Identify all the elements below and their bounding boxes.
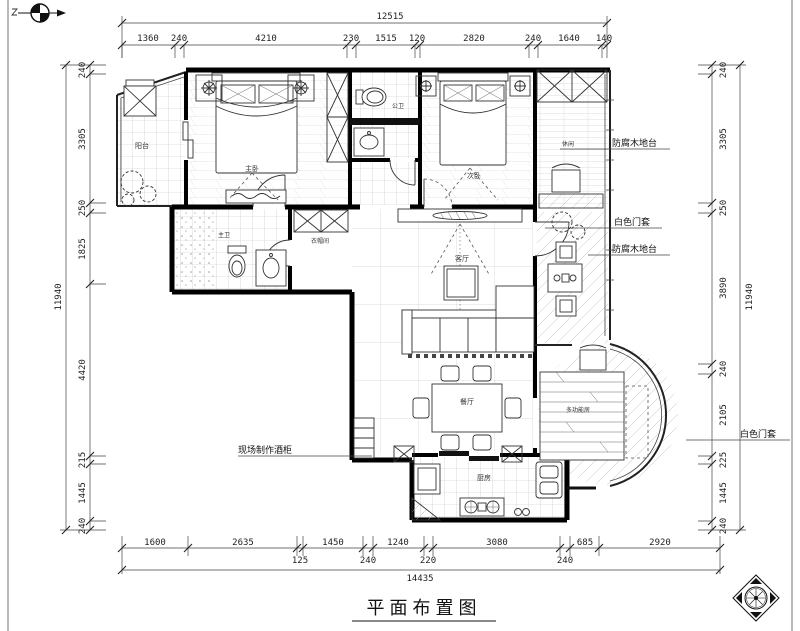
dimension-chain-left: 11940 240 3305 250 1825 4420 215 1445 24… [54,61,106,534]
annotation-deck-mid: 防腐木地台 [612,243,657,255]
dim: 1515 [375,34,397,44]
dim: 2820 [463,34,485,44]
annotation-wine-cabinet: 现场制作酒柜 [238,444,292,456]
drawing-title-block: 平面布置图 [352,598,496,621]
dim: 2635 [232,538,254,548]
dimension-chain-top: 12515 1360 240 4210 230 1515 120 2820 24… [118,12,612,58]
north-compass-icon [12,4,66,22]
dim: 2105 [719,404,729,426]
dim: 240 [360,556,376,566]
dim: 240 [525,34,541,44]
dim: 685 [577,538,593,548]
dim: 225 [719,452,729,468]
drawing-title: 平面布置图 [367,598,482,618]
dimension-chain-bottom: 1600 2635 1450 1240 3080 685 2920 125 24… [118,536,724,584]
dim: 220 [420,556,436,566]
dim-left-total: 11940 [54,283,64,310]
dim: 1445 [719,482,729,504]
room-label-second-bedroom: 次卧 [467,171,481,180]
room-label-dining: 餐厅 [460,397,474,406]
dim: 3305 [78,128,88,150]
dim: 125 [292,556,308,566]
dim: 240 [557,556,573,566]
dim: 1640 [558,34,580,44]
annotation-door-right: 白色门套 [740,428,776,440]
annotation-deck-top: 防腐木地台 [612,137,657,149]
dim: 1445 [78,482,88,504]
room-label-multi-room: 多功能房 [566,406,590,414]
floor-plan-sheet: 阳台 主卧 公卫 次卧 休闲 主卫 衣帽间 客厅 餐厅 厨房 多功能房 防腐木地… [0,0,800,631]
room-label-kitchen: 厨房 [477,473,491,482]
dim: 2920 [649,538,671,548]
dim: 215 [78,452,88,468]
floor-plan-drawing: 阳台 主卧 公卫 次卧 休闲 主卫 衣帽间 客厅 餐厅 厨房 多功能房 防腐木地… [0,0,800,631]
dim-top-total: 12515 [376,12,403,22]
dim: 240 [719,361,729,377]
dim: 1600 [144,538,166,548]
company-logo [733,575,779,621]
dim: 120 [409,34,425,44]
dim: 240 [171,34,187,44]
dim: 4420 [78,359,88,381]
dim: 4210 [255,34,277,44]
dimension-chain-right: 11940 240 3305 250 3890 240 2105 225 144… [698,61,755,534]
room-label-master-bedroom: 主卧 [245,164,259,173]
room-label-public-bath: 公卫 [392,103,404,110]
dim: 250 [719,200,729,216]
dim: 230 [343,34,359,44]
dim: 1825 [78,238,88,260]
dim: 250 [78,200,88,216]
dim: 1450 [322,538,344,548]
dim: 3080 [486,538,508,548]
dim: 140 [596,34,612,44]
room-label-master-bath: 主卫 [218,231,230,239]
wine-cabinet [354,418,374,458]
dim: 240 [78,518,88,534]
room-label-cloakroom: 衣帽间 [311,237,329,245]
dim: 3890 [719,277,729,299]
dim: 1240 [387,538,409,548]
dim: 240 [78,62,88,78]
cloakroom-cabinet [294,210,348,232]
room-label-balcony: 阳台 [135,141,149,150]
room-label-leisure: 休闲 [562,140,574,148]
annotation-door-top: 白色门套 [614,216,650,228]
dim: 1360 [137,34,159,44]
dim: 240 [719,518,729,534]
dim-bottom-total: 14435 [406,574,433,584]
dim: 3305 [719,128,729,150]
coffee-table [444,266,478,300]
dim: 240 [719,62,729,78]
dim-right-total: 11940 [745,283,755,310]
room-label-living: 客厅 [455,254,469,263]
